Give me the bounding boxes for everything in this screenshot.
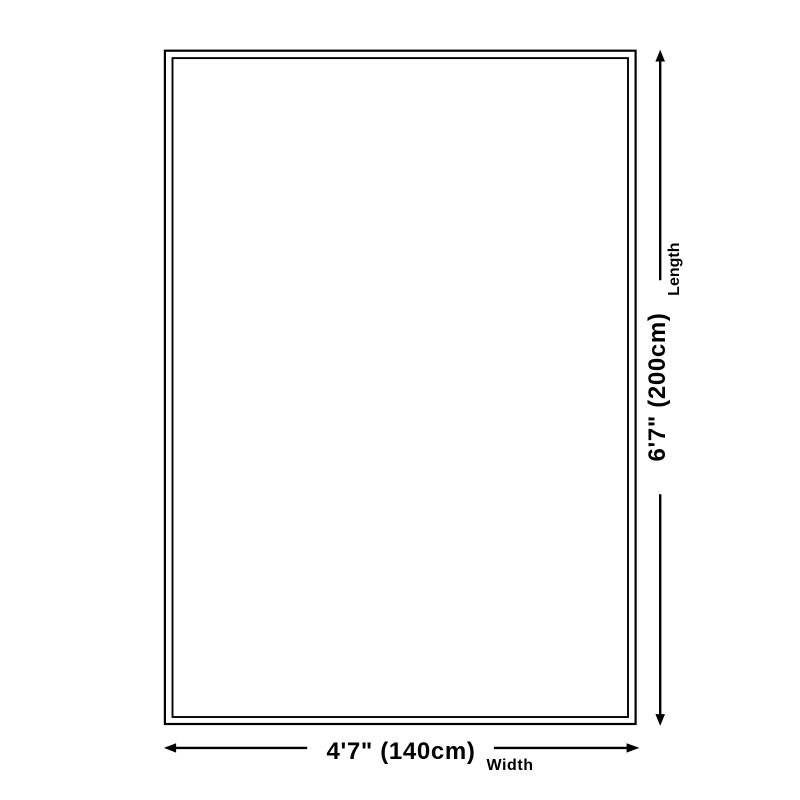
svg-text:4'7" (140cm): 4'7" (140cm) <box>327 738 476 765</box>
svg-text:Length: Length <box>666 242 683 295</box>
svg-text:Width: Width <box>487 757 534 774</box>
svg-text:6'7" (200cm): 6'7" (200cm) <box>644 313 671 462</box>
